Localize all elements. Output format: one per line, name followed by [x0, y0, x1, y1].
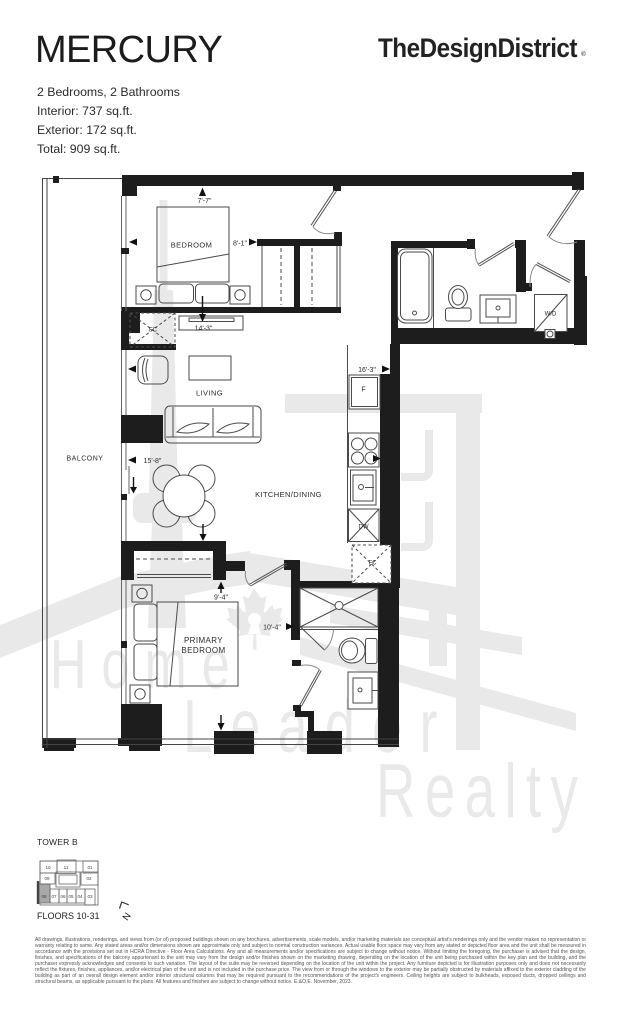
svg-text:09: 09 [44, 876, 50, 881]
svg-text:10'-4": 10'-4" [263, 625, 281, 632]
svg-text:05: 05 [68, 894, 74, 899]
svg-text:F: F [361, 387, 365, 394]
svg-text:7'-7": 7'-7" [198, 198, 212, 205]
svg-text:10: 10 [45, 865, 51, 870]
svg-text:9'-4": 9'-4" [214, 595, 228, 602]
svg-text:07: 07 [51, 894, 57, 899]
svg-text:15'-8": 15'-8" [144, 458, 162, 465]
svg-text:N: N [121, 911, 134, 923]
svg-text:FC: FC [369, 561, 378, 567]
svg-text:08: 08 [41, 894, 47, 899]
svg-text:16'-3": 16'-3" [358, 367, 376, 374]
svg-text:04: 04 [77, 894, 83, 899]
svg-text:W/D: W/D [545, 312, 557, 318]
svg-text:BALCONY: BALCONY [67, 456, 104, 463]
svg-text:02: 02 [86, 876, 92, 881]
svg-text:LIVING: LIVING [196, 389, 223, 398]
svg-text:PRIMARY: PRIMARY [184, 636, 223, 645]
svg-text:01: 01 [87, 865, 93, 870]
svg-text:06: 06 [60, 894, 66, 899]
svg-text:Realty: Realty [376, 749, 587, 834]
svg-text:14'-3": 14'-3" [195, 326, 213, 333]
svg-text:03: 03 [87, 894, 93, 899]
svg-text:TheDesignDistrict: TheDesignDistrict [378, 33, 578, 63]
svg-text:®: ® [581, 50, 586, 58]
svg-text:8'-1": 8'-1" [233, 241, 247, 248]
svg-text:FC: FC [149, 328, 158, 334]
svg-text:11: 11 [64, 865, 69, 870]
svg-text:DW: DW [359, 525, 369, 531]
svg-text:BEDROOM: BEDROOM [171, 241, 213, 250]
svg-text:BEDROOM: BEDROOM [181, 646, 225, 655]
svg-text:KITCHEN/DINING: KITCHEN/DINING [255, 490, 322, 499]
